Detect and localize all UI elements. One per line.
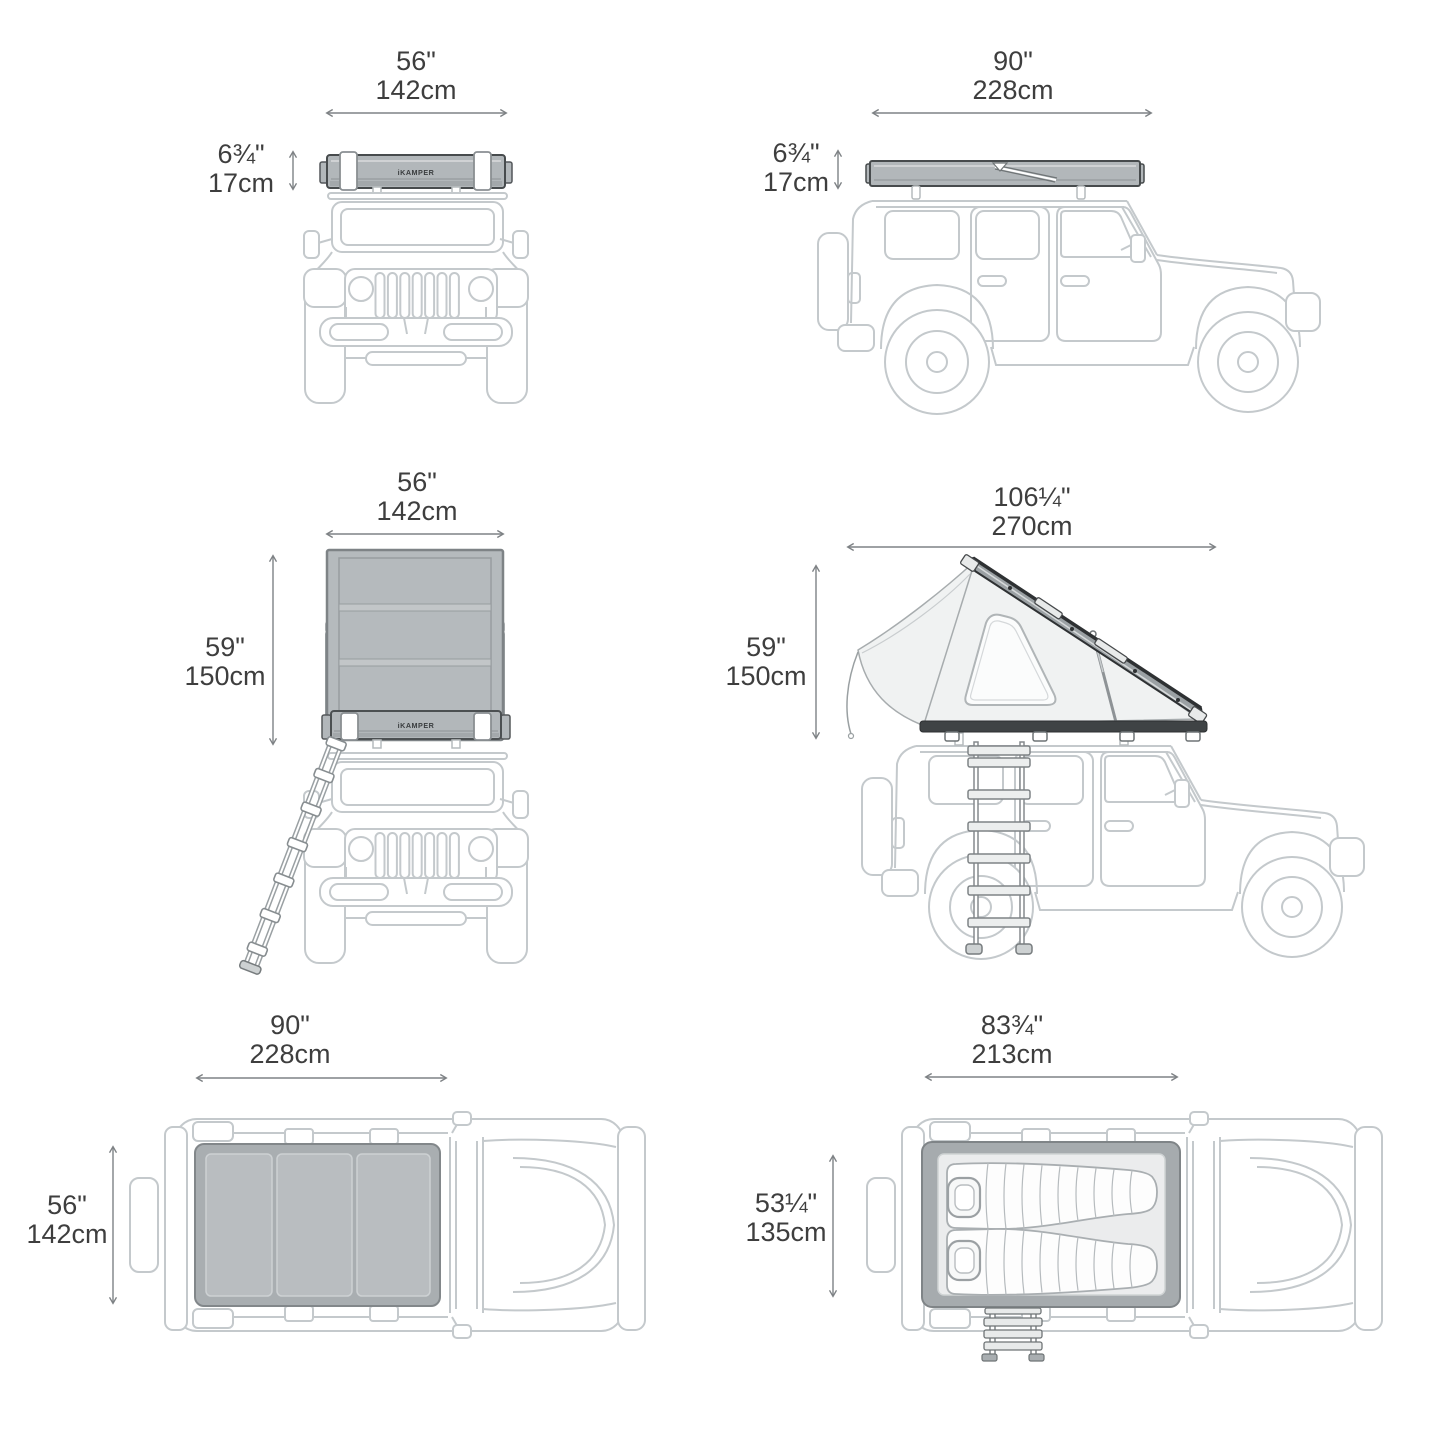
side-open-width-label: 106¼" 270cm [991,483,1072,541]
dimension-cm: 150cm [725,662,806,691]
dimension-cm: 228cm [249,1040,330,1069]
front-open-view: iKAMPER [239,534,528,975]
tent-dimension-diagram: iKAMPER [0,0,1445,1445]
front-closed-height-label: 6¾" 17cm [208,140,274,198]
dimension-cm: 142cm [26,1220,107,1249]
closed-tent-box: iKAMPER [320,152,512,195]
dimension-inches: 56" [26,1191,107,1220]
dimension-inches: 53¼" [745,1189,826,1218]
front-closed-view: iKAMPER [293,113,528,403]
side-open-height-label: 59" 150cm [725,633,806,691]
top-closed-height-label: 56" 142cm [26,1191,107,1249]
open-tent-side [847,554,1207,745]
dimension-inches: 56" [375,47,456,76]
dimension-cm: 17cm [763,168,829,197]
telescoping-ladder [966,742,1032,954]
guy-rope [847,652,858,734]
top-closed-width-label: 90" 228cm [249,1011,330,1069]
front-open-height-label: 59" 150cm [184,633,265,691]
dimension-cm: 270cm [991,512,1072,541]
side-closed-height-label: 6¾" 17cm [763,139,829,197]
dimension-inches: 56" [376,468,457,497]
dimension-cm: 142cm [376,497,457,526]
top-open-height-label: 53¼" 135cm [745,1189,826,1247]
dimension-inches: 83¾" [971,1011,1052,1040]
closed-tent-box-top [195,1144,440,1306]
tent-brand-logo: iKAMPER [398,721,435,730]
side-closed-width-label: 90" 228cm [972,47,1053,105]
dimension-inches: 6¾" [763,139,829,168]
side-closed-view [818,113,1320,414]
top-closed-view [113,1078,645,1338]
dimension-cm: 213cm [971,1040,1052,1069]
dimension-inches: 90" [972,47,1053,76]
dimension-inches: 59" [184,633,265,662]
dimension-cm: 142cm [375,76,456,105]
open-tent-rear-panel: iKAMPER [322,550,510,748]
dimension-inches: 106¼" [991,483,1072,512]
front-closed-width-label: 56" 142cm [375,47,456,105]
dimension-inches: 59" [725,633,806,662]
dimension-inches: 6¾" [208,140,274,169]
tent-brand-logo: iKAMPER [398,168,435,177]
diagram-art: iKAMPER [0,0,1445,1445]
side-open-view [816,547,1364,959]
dimension-cm: 135cm [745,1218,826,1247]
top-open-view [833,1077,1382,1361]
dimension-cm: 150cm [184,662,265,691]
top-open-width-label: 83¾" 213cm [971,1011,1052,1069]
closed-tent-box-side [866,161,1144,199]
tent-base-rail [920,721,1207,732]
dimension-inches: 90" [249,1011,330,1040]
dimension-cm: 228cm [972,76,1053,105]
front-open-width-label: 56" 142cm [376,468,457,526]
dimension-cm: 17cm [208,169,274,198]
